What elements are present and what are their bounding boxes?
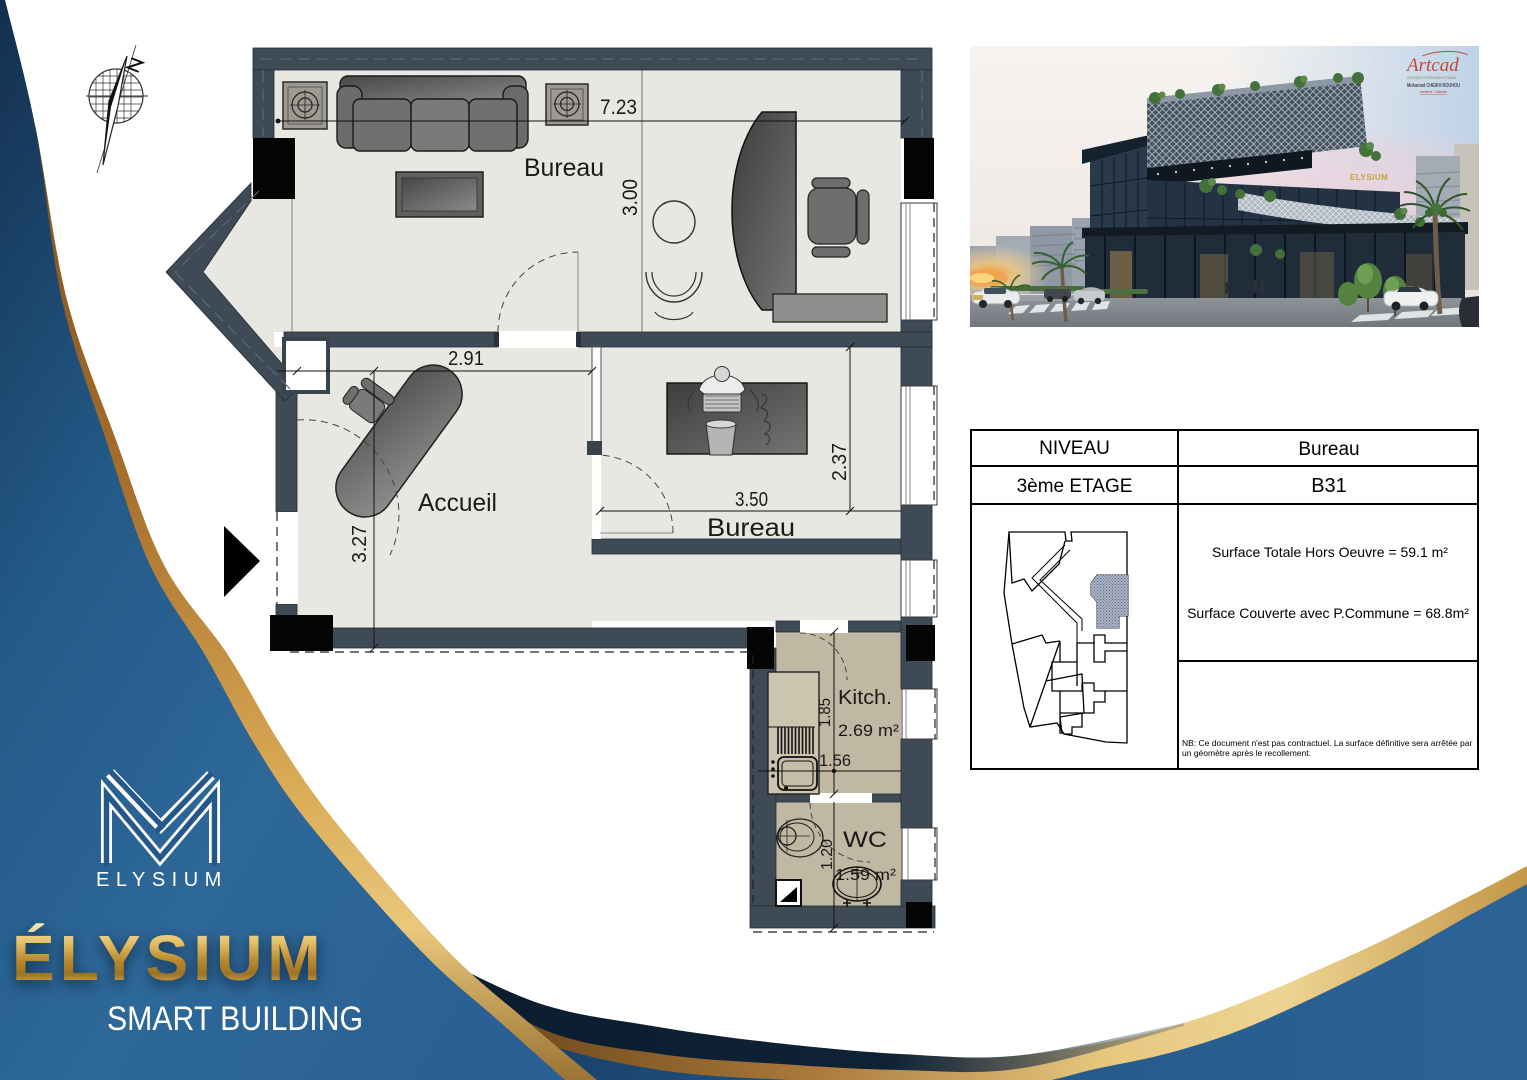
svg-text:1.20: 1.20 <box>819 839 836 870</box>
svg-text:WC: WC <box>843 827 887 852</box>
svg-text:1.56: 1.56 <box>819 751 851 770</box>
svg-text:Bureau: Bureau <box>524 154 604 182</box>
svg-text:7.23: 7.23 <box>600 96 637 119</box>
svg-text:2.69 m²: 2.69 m² <box>838 721 899 740</box>
svg-text:ELYSIUM: ELYSIUM <box>1350 173 1388 182</box>
svg-text:Accueil: Accueil <box>418 489 497 517</box>
svg-text:2.37: 2.37 <box>829 443 851 481</box>
svg-text:2.91: 2.91 <box>448 348 484 370</box>
svg-text:Architecte - Urbaniste: Architecte - Urbaniste <box>1420 89 1448 94</box>
svg-text:3.00: 3.00 <box>619 179 642 216</box>
svg-text:3.27: 3.27 <box>349 525 371 563</box>
svg-text:1.59 m²: 1.59 m² <box>835 867 897 884</box>
svg-text:3.50: 3.50 <box>735 489 768 511</box>
svg-text:1.85: 1.85 <box>815 698 834 727</box>
svg-text:Conception Architecturale & Tr: Conception Architecturale & Travaux <box>1407 75 1456 80</box>
svg-text:Bureau: Bureau <box>707 514 795 542</box>
svg-text:Artcad: Artcad <box>1405 55 1459 76</box>
svg-text:Kitch.: Kitch. <box>838 687 892 709</box>
